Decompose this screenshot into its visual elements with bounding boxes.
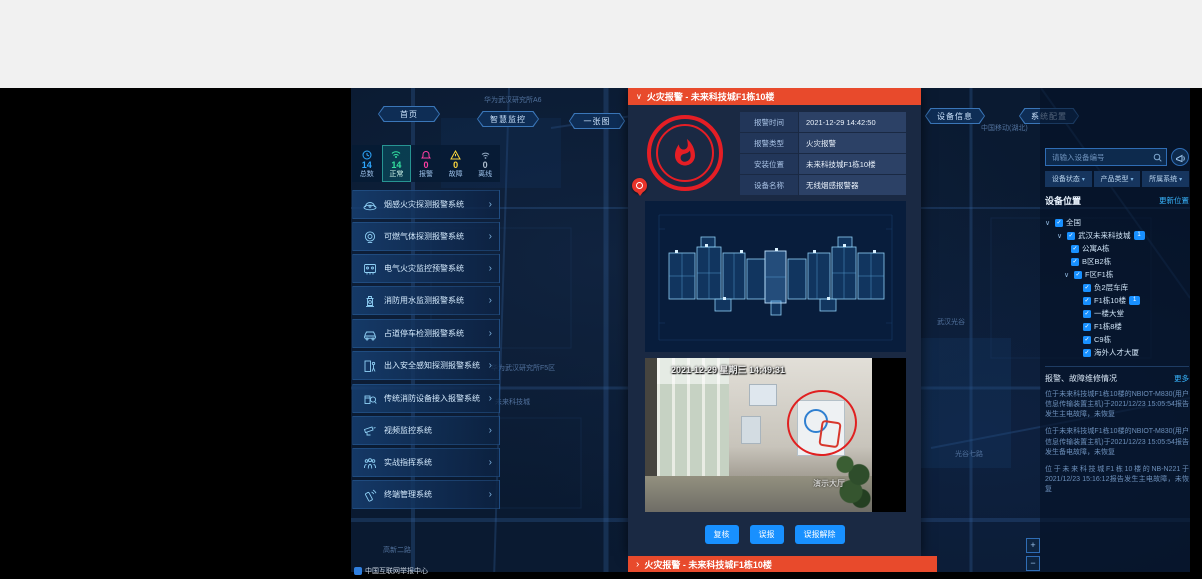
fault-message: 位于未来科技城F1栋10楼的NBIOT-M830(用户信息传输装置主机)于202… <box>1045 427 1189 457</box>
stat-label: 故障 <box>449 171 463 178</box>
stat-label: 总数 <box>360 171 374 178</box>
table-row: 报警时间 2021-12-29 14:42:50 <box>740 112 906 132</box>
map-label: 未来科技城 <box>495 398 530 407</box>
stat-offline[interactable]: 0 离线 <box>470 145 500 182</box>
fire-alarm-modal: 火灾报警 - 未来科技城F1栋10楼 报警时间 2021-12-29 14:42… <box>628 88 921 556</box>
sidebar-item-label: 消防用水监测报警系统 <box>384 295 489 306</box>
tree-node[interactable]: 一楼大堂 <box>1045 307 1189 320</box>
chevron-down-icon: ▾ <box>1179 176 1182 183</box>
chevron-right-icon: › <box>489 200 492 210</box>
filter-row: 设备状态▾ 产品类型▾ 所属系统▾ <box>1045 171 1189 187</box>
broadcast-button[interactable] <box>1171 148 1189 166</box>
map-label: 高新二路 <box>383 546 411 555</box>
cctv-camera-icon <box>360 424 379 438</box>
field-label: 设备名称 <box>740 175 798 195</box>
stat-fault[interactable]: 0 故障 <box>441 145 471 182</box>
signal-icon <box>391 150 401 160</box>
nav-home-button[interactable]: 首页 <box>378 106 440 122</box>
status-bar: 中国互联网举报中心 <box>354 566 428 576</box>
clock-icon <box>362 150 372 160</box>
map-viewport[interactable]: 华为武汉研究所A6 中国移动(湖北) 华为武汉研究所F5区 未来科技城 武汉光谷… <box>351 88 1190 579</box>
chevron-right-icon: › <box>489 232 492 242</box>
nav-one-map-button[interactable]: 一张图 <box>569 113 625 129</box>
sidebar-item-gas-system[interactable]: 可燃气体探测报警系统› <box>352 222 500 251</box>
nav-device-info-button[interactable]: 设备信息 <box>925 108 985 124</box>
field-label: 报警类型 <box>740 133 798 153</box>
fault-message: 位于未来科技城F1栋10楼的NBIOT-M830(用户信息传输装置主机)于202… <box>1045 390 1189 420</box>
sidebar-item-electrical-fire-system[interactable]: 电气火灾监控预警系统› <box>352 254 500 283</box>
sidebar-item-entry-security-system[interactable]: 出入安全感知探测报警系统› <box>352 351 500 380</box>
camera-black-band <box>872 358 906 512</box>
caret-down-icon[interactable]: ∨ <box>1045 219 1052 227</box>
floor-plan-image <box>645 201 906 352</box>
sidebar-item-label: 视频监控系统 <box>384 425 489 436</box>
camera-poster <box>741 416 761 444</box>
right-device-panel: 设备状态▾ 产品类型▾ 所属系统▾ 设备位置 更新位置 ∨ 全国 ∨ 武汉未来科… <box>1040 88 1190 579</box>
map-zoom-controls: + − <box>1026 538 1040 574</box>
field-value: 无线烟感报警器 <box>799 175 906 195</box>
more-link[interactable]: 更多 <box>1174 373 1189 384</box>
broadcast-icon <box>1175 152 1186 163</box>
table-row: 报警类型 火灾报警 <box>740 133 906 153</box>
collapsed-fire-alarm-bar[interactable]: 火灾报警 - 未来科技城F1栋10楼 <box>628 556 937 573</box>
checkbox-checked-icon[interactable] <box>1055 219 1063 227</box>
field-value: 未来科技城F1栋10楼 <box>799 154 906 174</box>
checkbox-checked-icon[interactable] <box>1083 310 1091 318</box>
remote-control-icon <box>360 488 379 502</box>
camera-watermark: 演示大厅 <box>813 478 845 489</box>
tree-node-floor-10[interactable]: F1栋10楼 1 <box>1045 294 1189 307</box>
field-value: 2021-12-29 14:42:50 <box>799 112 906 132</box>
recheck-button[interactable]: 复核 <box>705 525 739 544</box>
field-label: 报警时间 <box>740 112 798 132</box>
fault-info-section: 报警、故障维修情况 更多 位于未来科技城F1栋10楼的NBIOT-M830(用户… <box>1045 366 1189 502</box>
chevron-right-icon: › <box>489 490 492 500</box>
checkbox-checked-icon[interactable] <box>1083 297 1091 305</box>
wifi-off-icon <box>480 150 491 160</box>
map-label: 光谷七路 <box>955 450 983 459</box>
status-badge-icon <box>354 567 362 575</box>
checkbox-checked-icon[interactable] <box>1074 271 1082 279</box>
checkbox-checked-icon[interactable] <box>1083 323 1091 331</box>
fire-alarm-modal-header[interactable]: 火灾报警 - 未来科技城F1栋10楼 <box>628 88 921 105</box>
stat-total[interactable]: 14 总数 <box>352 145 382 182</box>
nav-smart-monitor-button[interactable]: 智慧监控 <box>477 111 539 127</box>
fault-info-header: 报警、故障维修情况 更多 <box>1045 373 1189 384</box>
alarm-count-badge: 1 <box>1134 231 1145 240</box>
gas-detector-icon <box>360 230 379 244</box>
search-icon <box>1153 153 1162 162</box>
caret-down-icon[interactable]: ∨ <box>1064 271 1071 279</box>
map-label: 华为武汉研究所F5区 <box>491 364 555 373</box>
alarm-count-badge: 1 <box>1129 296 1140 305</box>
tree-node-park[interactable]: ∨ 武汉未来科技城 1 <box>1045 229 1189 242</box>
door-person-icon <box>360 359 379 373</box>
fault-message: 位于未来科技城F1栋10楼的NB-N221于2021/12/23 15:16:1… <box>1045 465 1189 495</box>
collapsed-alarm-title: 火灾报警 - 未来科技城F1栋10楼 <box>644 558 772 571</box>
zoom-out-button[interactable]: − <box>1026 556 1040 571</box>
chevron-right-icon: › <box>489 296 492 306</box>
team-icon <box>360 456 379 470</box>
stat-value: 14 <box>391 161 401 170</box>
sidebar-item-fire-water-system[interactable]: 消防用水监测报警系统› <box>352 286 500 315</box>
status-bar-text: 中国互联网举报中心 <box>365 566 428 576</box>
table-row: 设备名称 无线烟感报警器 <box>740 175 906 195</box>
dismiss-false-alarm-button[interactable]: 误报解除 <box>795 525 845 544</box>
device-location-tree: ∨ 全国 ∨ 武汉未来科技城 1 公寓A栋 B区B2栋 <box>1045 216 1189 359</box>
device-location-header: 设备位置 更新位置 <box>1045 192 1189 208</box>
map-label: 华为武汉研究所A6 <box>484 96 542 105</box>
alarm-info-table: 报警时间 2021-12-29 14:42:50 报警类型 火灾报警 安装位置 … <box>740 112 906 196</box>
sidebar-item-smoke-fire-system[interactable]: 烟感火灾探测报警系统› <box>352 190 500 219</box>
filter-product-type[interactable]: 产品类型▾ <box>1094 171 1141 187</box>
modal-button-row: 复核 误报 误报解除 <box>628 525 921 544</box>
tree-node[interactable]: B区B2栋 <box>1045 255 1189 268</box>
tree-node[interactable]: 负2层车库 <box>1045 281 1189 294</box>
filter-system[interactable]: 所属系统▾ <box>1142 171 1189 187</box>
stat-label: 离线 <box>478 171 492 178</box>
chevron-right-icon: › <box>489 458 492 468</box>
camera-snapshot: 2021-12-29 星期三 14:49:31 演示大厅 <box>645 358 906 512</box>
sidebar-item-label: 电气火灾监控预警系统 <box>384 263 489 274</box>
device-stats-bar: 14 总数 14 正常 0 报警 0 故障 0 离线 <box>352 145 500 182</box>
tree-node-root[interactable]: ∨ 全国 <box>1045 216 1189 229</box>
fire-alarm-ring <box>647 115 723 191</box>
sidebar-item-video-surveillance-system[interactable]: 视频监控系统› <box>352 416 500 445</box>
warning-triangle-icon <box>450 150 461 160</box>
map-label: 武汉光谷 <box>937 318 965 327</box>
pin-fire-icon <box>636 182 643 189</box>
sidebar-item-label: 占道停车检测报警系统 <box>384 328 489 339</box>
checkbox-checked-icon[interactable] <box>1083 336 1091 344</box>
chevron-down-icon: ▾ <box>1082 176 1085 183</box>
letterbox-bottom <box>0 572 1202 579</box>
smoke-detector-icon <box>360 198 379 212</box>
tree-node[interactable]: C9栋 <box>1045 333 1189 346</box>
field-label: 安装位置 <box>740 154 798 174</box>
sidebar-item-label: 终端管理系统 <box>384 489 489 500</box>
chevron-right-icon: › <box>489 329 492 339</box>
stat-value: 0 <box>453 161 458 170</box>
sidebar-item-label: 可燃气体探测报警系统 <box>384 231 489 242</box>
sidebar-item-label: 出入安全感知探测报警系统 <box>384 360 489 371</box>
screen: 华为武汉研究所A6 中国移动(湖北) 华为武汉研究所F5区 未来科技城 武汉光谷… <box>0 0 1202 579</box>
car-icon <box>360 327 379 341</box>
chevron-right-icon: › <box>489 394 492 404</box>
camera-timestamp: 2021-12-29 星期三 14:49:31 <box>671 363 785 376</box>
stat-label: 正常 <box>389 171 403 178</box>
sidebar-item-legacy-fire-access-system[interactable]: 传统消防设备接入报警系统› <box>352 384 500 413</box>
sidebar-item-label: 实战指挥系统 <box>384 457 489 468</box>
device-search-box[interactable] <box>1045 148 1167 166</box>
map-label: 中国移动(湖北) <box>981 124 1028 133</box>
hydrant-magnifier-icon <box>360 392 379 406</box>
false-alarm-button[interactable]: 误报 <box>750 525 784 544</box>
table-row: 安装位置 未来科技城F1栋10楼 <box>740 154 906 174</box>
tree-node[interactable]: 公寓A栋 <box>1045 242 1189 255</box>
fault-info-title: 报警、故障维修情况 <box>1045 373 1117 384</box>
checkbox-checked-icon[interactable] <box>1071 258 1079 266</box>
chevron-right-icon: › <box>489 264 492 274</box>
search-input[interactable] <box>1050 152 1150 163</box>
update-location-link[interactable]: 更新位置 <box>1159 195 1189 206</box>
stat-value: 14 <box>362 161 372 170</box>
filter-device-status[interactable]: 设备状态▾ <box>1045 171 1092 187</box>
camera-poster <box>749 384 777 406</box>
field-value: 火灾报警 <box>799 133 906 153</box>
alarm-bell-icon <box>421 150 431 160</box>
hydrant-icon <box>360 294 379 308</box>
device-location-title: 设备位置 <box>1045 194 1081 207</box>
sidebar-item-label: 传统消防设备接入报警系统 <box>384 393 489 404</box>
sidebar-item-terminal-management-system[interactable]: 终端管理系统› <box>352 480 500 509</box>
tree-node[interactable]: 海外人才大厦 <box>1045 346 1189 359</box>
modal-title: 火灾报警 - 未来科技城F1栋10楼 <box>647 90 775 103</box>
checkbox-checked-icon[interactable] <box>1083 284 1091 292</box>
electrical-panel-icon <box>360 262 379 276</box>
stat-label: 报警 <box>419 171 433 178</box>
flame-icon <box>670 138 700 168</box>
zoom-in-button[interactable]: + <box>1026 538 1040 553</box>
checkbox-checked-icon[interactable] <box>1071 245 1079 253</box>
stat-alarm[interactable]: 0 报警 <box>411 145 441 182</box>
caret-down-icon[interactable]: ∨ <box>1057 232 1064 240</box>
tree-node[interactable]: F1栋8楼 <box>1045 320 1189 333</box>
chevron-right-icon: › <box>489 426 492 436</box>
stat-normal[interactable]: 14 正常 <box>382 145 412 182</box>
stat-value: 0 <box>423 161 428 170</box>
sidebar-item-label: 烟感火灾探测报警系统 <box>384 199 489 210</box>
checkbox-checked-icon[interactable] <box>1083 349 1091 357</box>
tree-node-building-f1[interactable]: ∨ F区F1栋 <box>1045 268 1189 281</box>
checkbox-checked-icon[interactable] <box>1067 232 1075 240</box>
fire-alarm-map-pin[interactable] <box>632 178 647 193</box>
stat-value: 0 <box>483 161 488 170</box>
sidebar-item-parking-detection-system[interactable]: 占道停车检测报警系统› <box>352 319 500 348</box>
chevron-down-icon: ▾ <box>1131 176 1134 183</box>
chevron-right-icon: › <box>489 361 492 371</box>
letterbox-top <box>0 0 1202 88</box>
sidebar-item-command-system[interactable]: 实战指挥系统› <box>352 448 500 477</box>
